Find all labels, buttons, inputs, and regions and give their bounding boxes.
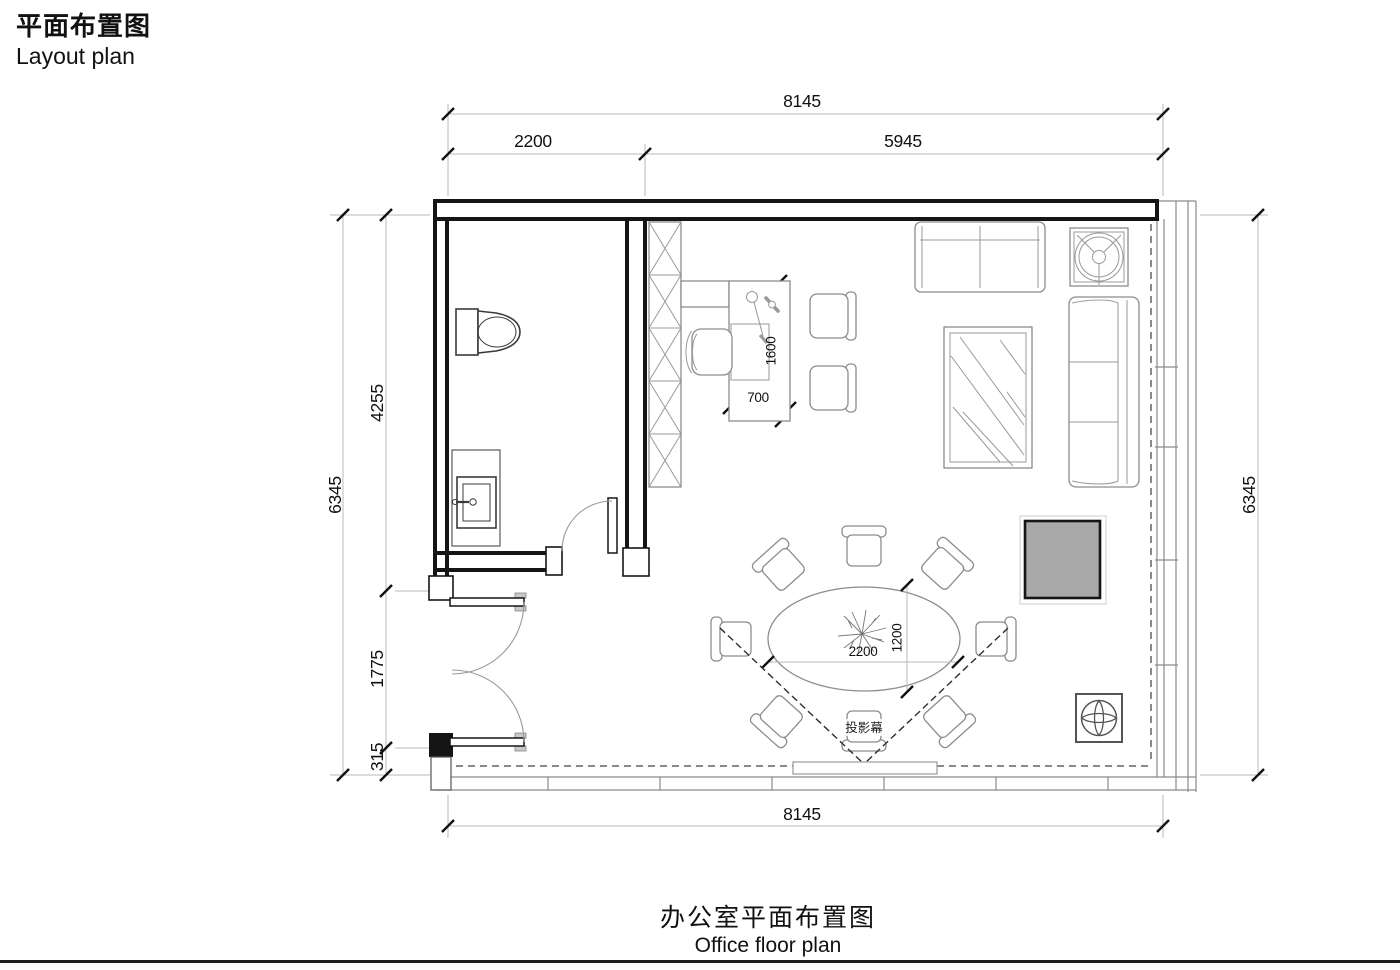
dim-table-length: 2200 [849,644,878,659]
drawing-caption: 办公室平面布置图 Office floor plan [468,898,1068,958]
dim-right-total: 6345 [1239,476,1259,514]
side-table-with-tray [1070,228,1128,286]
bathroom-door [562,498,617,553]
window-wall-bottom [436,777,1196,790]
dim-top-total: 8145 [783,91,821,111]
dim-table-width: 1200 [890,624,905,653]
desk-return [681,281,729,307]
entry-door-swing-arc-bottom [452,670,524,742]
caption-zh: 办公室平面布置图 [468,898,1068,934]
entry-door-leaf-bottom [450,738,524,746]
dim-desk-depth: 700 [747,390,769,405]
dim-left-lower: 315 [367,743,387,771]
bathroom-sink [452,450,500,546]
entry-door-jamb-top [429,576,453,600]
bathroom-door-swing-arc [562,501,612,551]
shelving-cabinet [649,222,681,487]
page: { "header": { "title_zh": "平面布置图", "titl… [0,0,1400,970]
conference-table [768,587,960,691]
conference-chair [751,536,810,595]
entry-door-swing-arc-top [452,602,524,674]
corner-sill-post [431,757,451,790]
av-cabinet [1020,516,1106,604]
conference-chair [918,690,977,749]
desk-chair [686,329,732,375]
curtain-dashed-line [456,224,1151,766]
sofa-two-seat [915,222,1045,292]
guest-chair-1 [810,292,856,340]
bottom-border-line [0,960,1400,963]
conference-chair [842,526,886,566]
dim-left-upper: 4255 [367,384,387,422]
projection-screen [793,762,937,774]
dim-top-left: 2200 [514,131,552,151]
bathroom-partition-jamb [623,548,649,576]
floor-outlet-symbol [1076,694,1122,742]
bathroom-door-jamb [546,547,562,575]
conference-chair [916,535,975,594]
coffee-table-glass [944,327,1032,468]
dim-desk-length: 1600 [764,337,779,366]
sofa-three-seat [1069,297,1139,487]
conference-chair [749,690,808,749]
entry-double-door [450,593,526,751]
walls [429,199,1157,790]
dim-top-right: 5945 [884,131,922,151]
toilet [456,309,520,355]
dim-left-total: 6345 [325,476,345,514]
projection-screen-label: 投影幕 [845,720,883,735]
window-wall-right [1155,201,1196,792]
caption-en: Office floor plan [468,934,1068,958]
floor-plan-drawing: 投影幕 8145 2200 5945 6345 4255 1775 315 63… [0,0,1400,970]
guest-chair-2 [810,364,856,412]
bathroom-door-leaf [608,498,617,553]
entry-door-leaf-top [450,598,524,606]
dim-left-mid: 1775 [367,650,387,688]
dim-bottom-total: 8145 [783,804,821,824]
